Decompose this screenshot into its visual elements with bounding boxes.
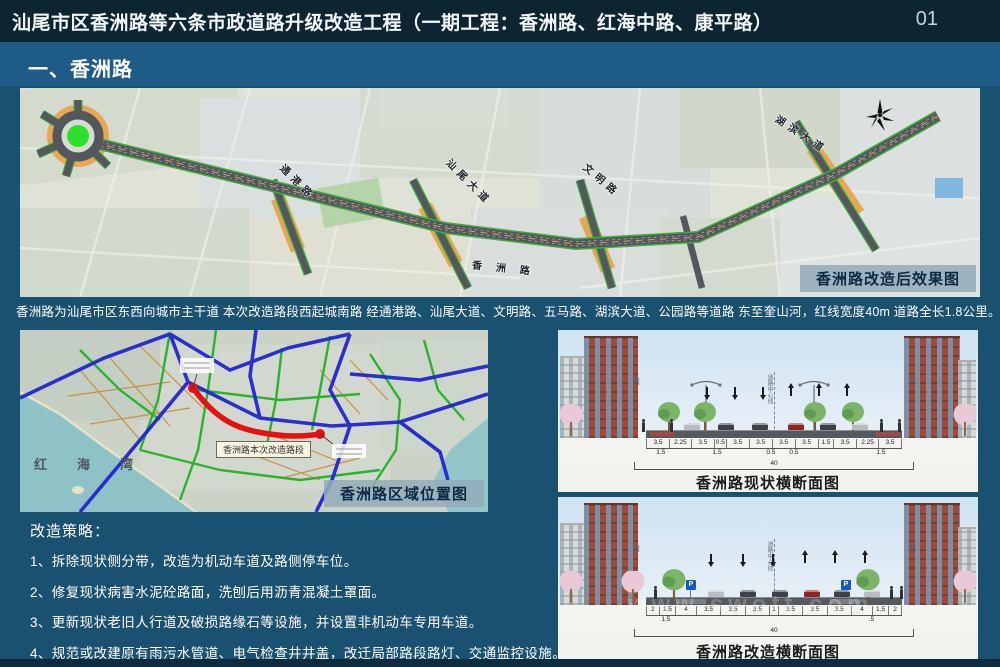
lane-direction-down-icon bbox=[734, 387, 736, 396]
description-text: 香洲路为汕尾市区东西向城市主干道 本次改造路段西起城南路 经通港路、汕尾大道、文… bbox=[16, 301, 994, 320]
section-bar: 一、香洲路 bbox=[0, 42, 1000, 86]
lane-direction-down-icon bbox=[742, 554, 744, 563]
car-icon bbox=[852, 423, 868, 430]
pedestrian-icon bbox=[670, 422, 673, 432]
page-title: 汕尾市区香洲路等六条市政道路升级改造工程（一期工程：香洲路、红海中路、康平路） bbox=[12, 8, 773, 35]
section-title: 一、香洲路 bbox=[28, 53, 133, 82]
lane-direction-up-icon bbox=[864, 554, 866, 563]
north-label: 北 bbox=[908, 543, 916, 554]
road-segment-tag: 香洲路本次改造路段 bbox=[216, 441, 311, 458]
parking-sign-icon: P bbox=[686, 580, 696, 590]
sub-dimension-row: 1.51.50.50.51.5 bbox=[646, 449, 902, 457]
strategy-list: 1、拆除现状侧分带，改造为机动车道及路侧停车位。2、修复现状病害水泥砼路面，洗刨… bbox=[30, 550, 575, 662]
lane-direction-down-icon bbox=[710, 554, 712, 563]
sea-label: 红海湾 bbox=[34, 454, 163, 473]
lane-direction-up-icon bbox=[818, 387, 820, 396]
north-label: 北 bbox=[908, 376, 916, 387]
car-icon bbox=[684, 423, 700, 430]
effect-map-caption: 香洲路改造后效果图 bbox=[800, 265, 976, 292]
strategy-item: 1、拆除现状侧分带，改造为机动车道及路侧停车位。 bbox=[30, 550, 575, 570]
total-width-line: 40 bbox=[634, 462, 914, 470]
strategy-block: 改造策略： 1、拆除现状侧分带，改造为机动车道及路侧停车位。2、修复现状病害水泥… bbox=[30, 520, 575, 667]
lane-direction-up-icon bbox=[846, 387, 848, 396]
effect-map-panel: 通港路 汕尾大道 文明路 湖滨大道 香洲路 香洲路改造后效果图 bbox=[20, 88, 980, 297]
strategy-title: 改造策略： bbox=[30, 520, 575, 541]
location-map-panel: 红海湾 香洲路本次改造路段 香洲路区域位置图 bbox=[20, 330, 488, 512]
slide: 汕尾市区香洲路等六条市政道路升级改造工程（一期工程：香洲路、红海中路、康平路） … bbox=[0, 0, 1000, 667]
footer-strip bbox=[0, 659, 1000, 667]
building-illustration bbox=[584, 336, 638, 438]
road-centerline: 道路中心线 bbox=[774, 372, 775, 434]
current-section-panel: 人行道树穴非机动车道侧分带绿化带机动车道机动车道机动车道机动车道绿化带侧分带非机… bbox=[558, 330, 978, 492]
median-strip bbox=[876, 432, 900, 436]
blossom-tree-icon bbox=[558, 404, 584, 436]
pedestrian-icon bbox=[890, 589, 893, 599]
pedestrian-icon bbox=[900, 589, 903, 599]
tree-icon bbox=[656, 400, 682, 434]
strategy-item: 3、更新现状老旧人行道及破损路缘石等设施，并设置非机动车专用车道。 bbox=[30, 611, 575, 631]
location-map-caption: 香洲路区域位置图 bbox=[324, 480, 484, 507]
header-bar: 汕尾市区香洲路等六条市政道路升级改造工程（一期工程：香洲路、红海中路、康平路） … bbox=[0, 0, 1000, 42]
south-label: 南 bbox=[632, 543, 640, 554]
parking-sign-icon: P bbox=[841, 580, 851, 590]
lane-direction-down-icon bbox=[772, 554, 774, 563]
watermark: www.swott.com bbox=[628, 591, 873, 619]
pedestrian-icon bbox=[642, 422, 645, 432]
blossom-tree-icon bbox=[952, 404, 978, 436]
south-label: 南 bbox=[632, 376, 640, 387]
car-icon bbox=[788, 423, 804, 430]
lane-direction-down-icon bbox=[762, 387, 764, 396]
lane-direction-up-icon bbox=[834, 554, 836, 563]
pedestrian-icon bbox=[880, 422, 883, 432]
blossom-tree-icon bbox=[952, 571, 978, 603]
car-icon bbox=[820, 423, 836, 430]
current-section-caption: 香洲路现状横断面图 bbox=[558, 472, 978, 492]
dimension-row: 3.52.253.50.53.53.53.53.51.53.52.253.5 bbox=[646, 439, 902, 449]
strategy-item: 2、修复现状病害水泥砼路面，洗刨后用沥青混凝土罩面。 bbox=[30, 581, 575, 601]
pedestrian-icon bbox=[898, 422, 901, 432]
lane-direction-down-icon bbox=[706, 387, 708, 396]
total-width-line: 40 bbox=[634, 629, 914, 637]
car-icon bbox=[718, 423, 734, 430]
page-number: 01 bbox=[916, 8, 938, 31]
car-icon bbox=[752, 423, 768, 430]
compass-icon bbox=[865, 98, 895, 137]
lane-direction-up-icon bbox=[790, 387, 792, 396]
blossom-tree-icon bbox=[558, 571, 584, 603]
proposed-section-panel: 人行道非机动车道树穴停车带机动车道机动车道机动车道机动车道机动车道机动车道停车带… bbox=[558, 497, 978, 662]
lane-direction-up-icon bbox=[804, 554, 806, 563]
